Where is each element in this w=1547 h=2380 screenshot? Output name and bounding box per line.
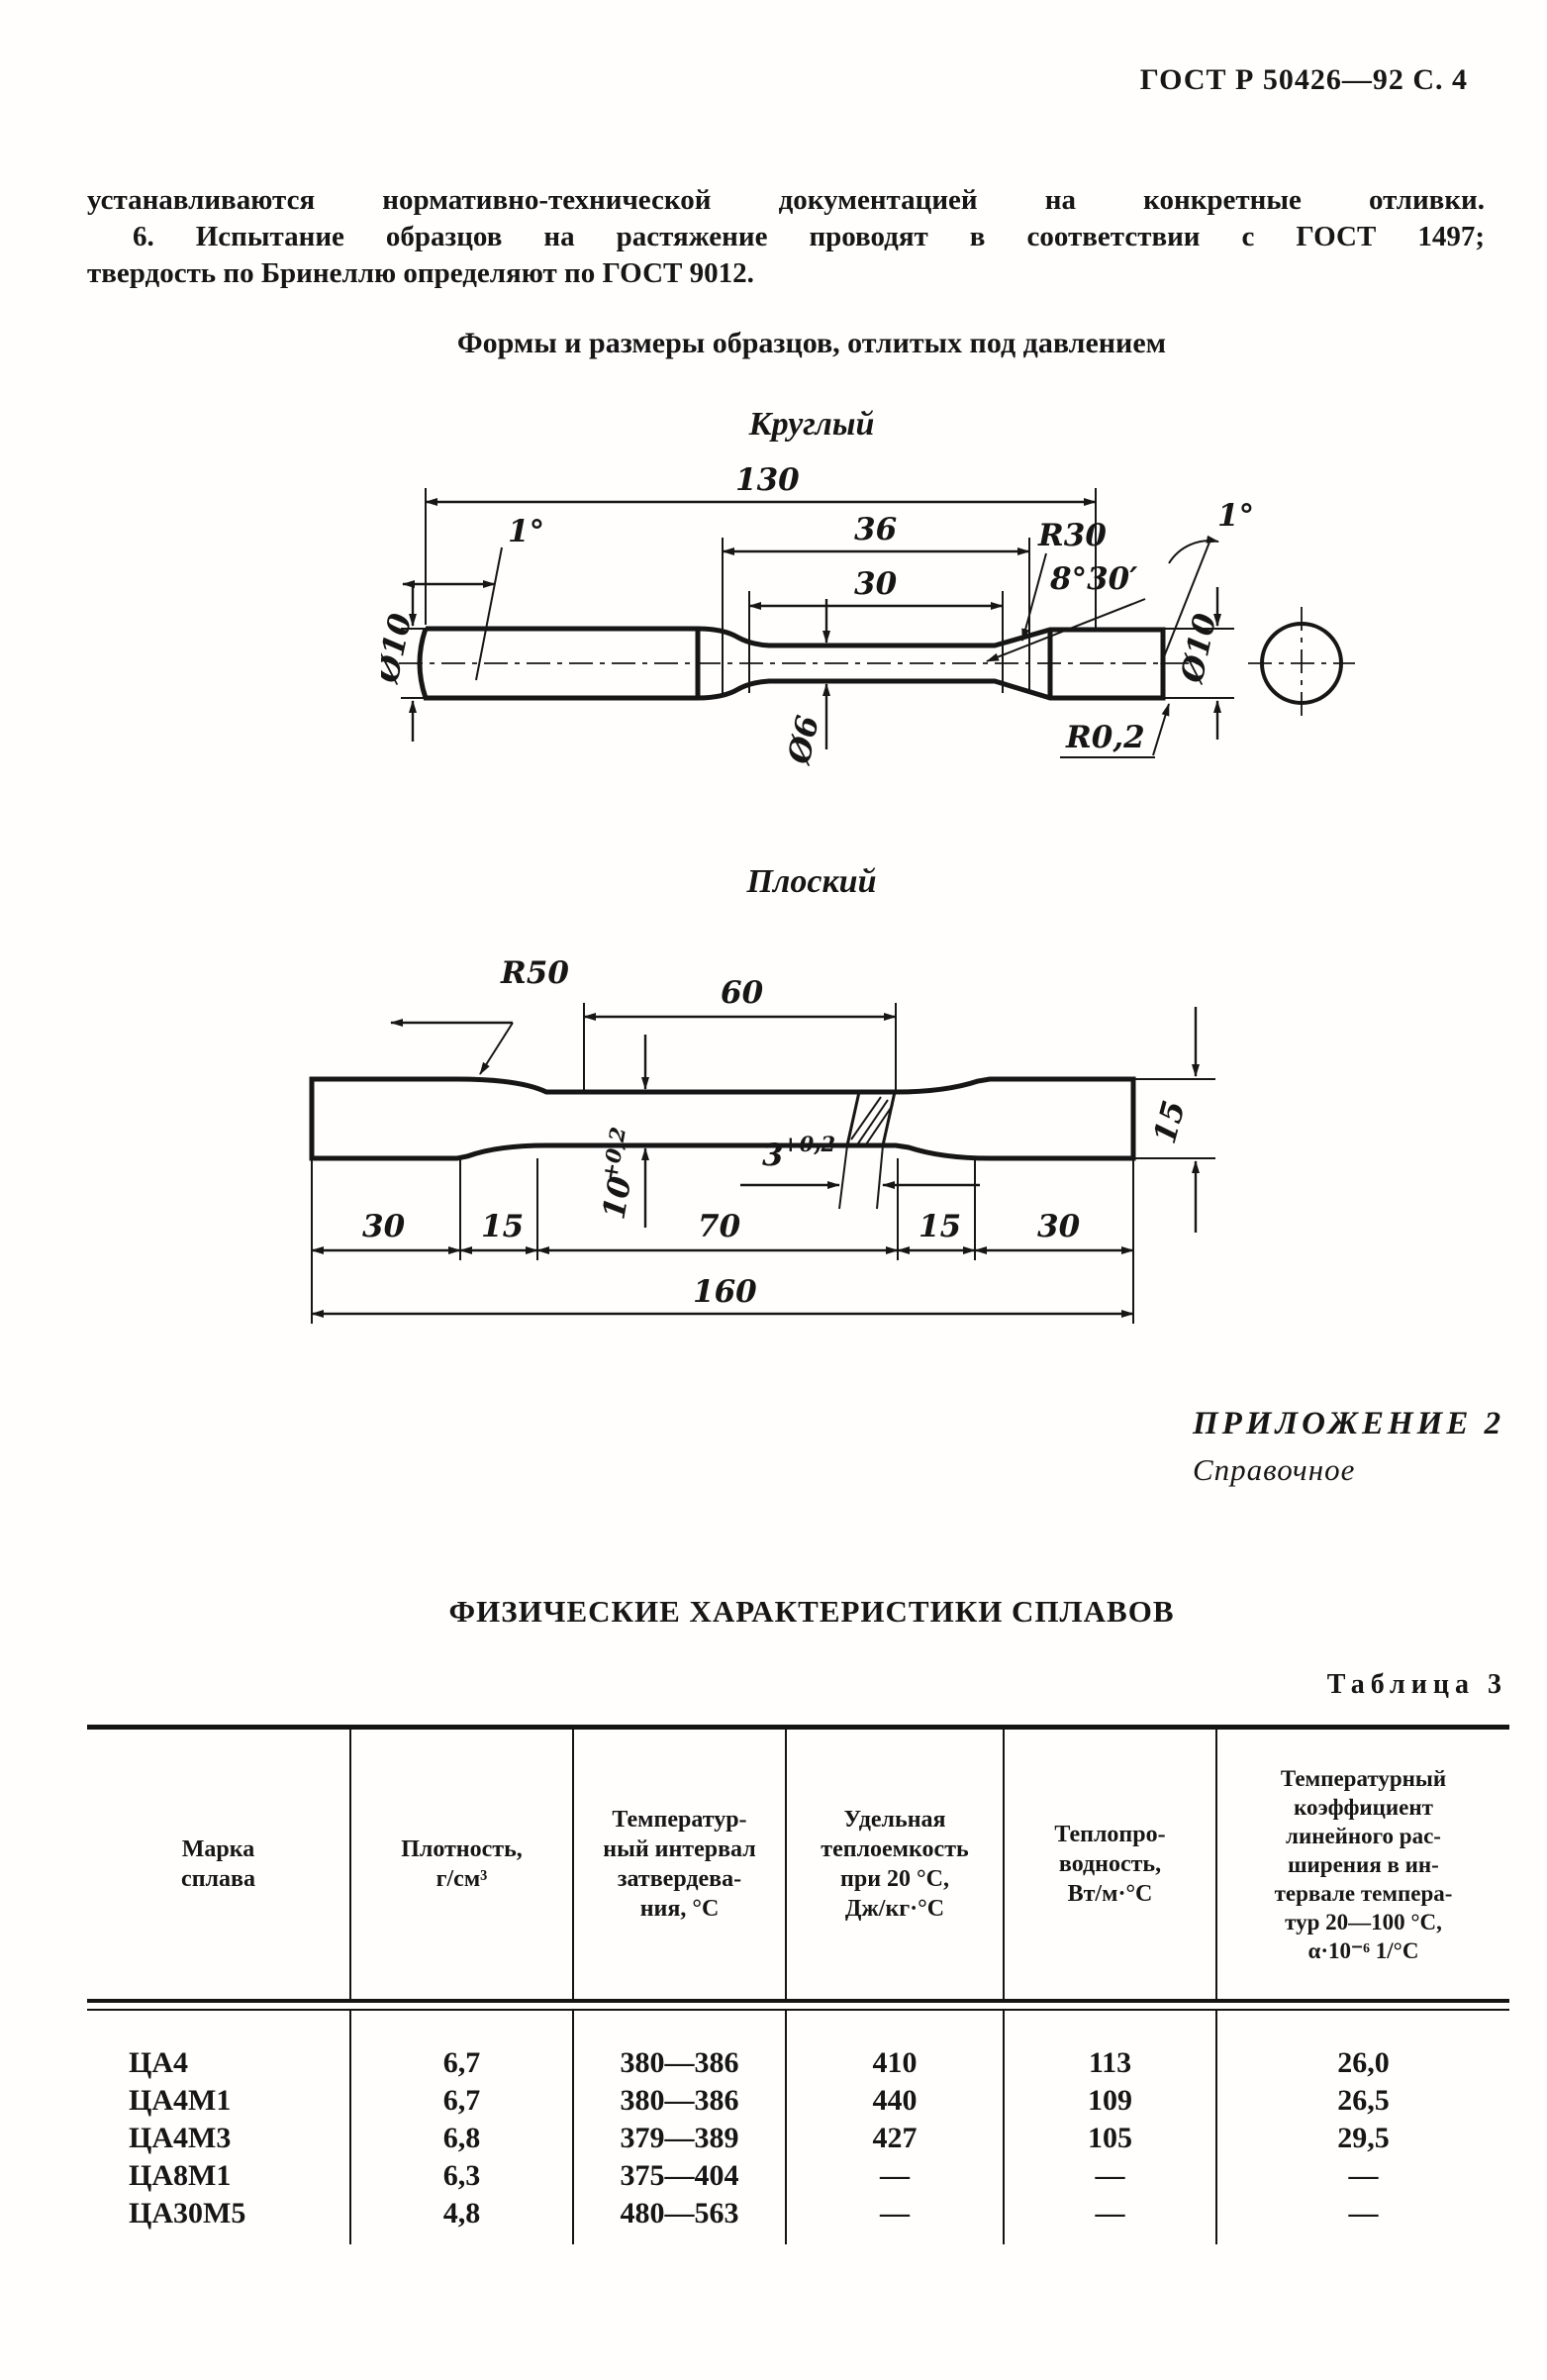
- table-cell: 4,8: [351, 2195, 572, 2232]
- table-cell: ЦА30М5: [87, 2195, 349, 2232]
- table-label: Таблица 3: [1327, 1669, 1507, 1701]
- dim-width15: 15: [1147, 1097, 1193, 1147]
- table-cell: ЦА4М1: [87, 2082, 349, 2120]
- dim-dia-mid-group: Ø6: [781, 713, 826, 769]
- table-cell: —: [1217, 2157, 1509, 2195]
- intro-paragraph: устанавливаются нормативно-технической д…: [87, 182, 1485, 292]
- table-cell: 440: [787, 2082, 1003, 2120]
- table-cell: —: [787, 2195, 1003, 2232]
- dim-dia-left: Ø10: [381, 610, 419, 687]
- dim-dia-right: Ø10: [1174, 610, 1223, 687]
- table-cell: —: [1005, 2195, 1215, 2232]
- dim-r02: R0,2: [1065, 720, 1145, 755]
- forms-title: Формы и размеры образцов, отлитых под да…: [139, 327, 1485, 360]
- col-header-density: Плотность, г/см³: [351, 1730, 574, 1999]
- table-body: ЦА4 ЦА4М1 ЦА4М3 ЦА8М1 ЦА30М5 6,7 6,7 6,8…: [87, 2011, 1509, 2244]
- column-interval: 380—386 380—386 379—389 375—404 480—563: [574, 2011, 787, 2244]
- table-cell: 427: [787, 2120, 1003, 2157]
- dim-thickness-tol: +0,2: [782, 1132, 835, 1156]
- table-cell: 109: [1005, 2082, 1215, 2120]
- table-cell: 380—386: [574, 2044, 785, 2082]
- column-density: 6,7 6,7 6,8 6,3 4,8: [351, 2011, 574, 2244]
- appendix-title: ПРИЛОЖЕНИЕ 2: [1193, 1406, 1504, 1442]
- dim-total160: 160: [693, 1274, 757, 1310]
- r50-leader: [480, 1023, 513, 1074]
- dim-r50: R50: [500, 955, 569, 991]
- dim-width15-group: 15: [1147, 1097, 1193, 1147]
- table-cell: 6,3: [351, 2157, 572, 2195]
- intro-line-3: твердость по Бринеллю определяют по ГОСТ…: [87, 255, 1485, 292]
- leader-r30: [1022, 553, 1046, 641]
- document-page: ГОСТ Р 50426—92 С. 4 устанавливаются нор…: [0, 0, 1547, 2380]
- table-cell: 6,7: [351, 2082, 572, 2120]
- dim-gaugewidth-group: 10 +0,2: [591, 1125, 647, 1222]
- col-header-brand: Марка сплава: [87, 1730, 351, 1999]
- flat-specimen-outline: [312, 1079, 1133, 1158]
- table-cell: —: [1217, 2195, 1509, 2232]
- table-cell: 379—389: [574, 2120, 785, 2157]
- column-conductivity: 113 109 105 — —: [1005, 2011, 1217, 2244]
- angle-arc-right: [1169, 541, 1218, 563]
- table-cell: 410: [787, 2044, 1003, 2082]
- dim-taper: 8°30′: [1049, 561, 1137, 597]
- dim-seg1: 30: [362, 1209, 406, 1244]
- table-cell: ЦА8М1: [87, 2157, 349, 2195]
- table-cell: ЦА4: [87, 2044, 349, 2082]
- page-header: ГОСТ Р 50426—92 С. 4: [1140, 63, 1468, 97]
- dim-angle-right: 1°: [1217, 498, 1254, 534]
- table-cell: 105: [1005, 2120, 1215, 2157]
- table-cell: 26,5: [1217, 2082, 1509, 2120]
- intro-line-1: устанавливаются нормативно-технической д…: [87, 182, 1485, 219]
- physical-characteristics-title: ФИЗИЧЕСКИЕ ХАРАКТЕРИСТИКИ СПЛАВОВ: [139, 1594, 1485, 1630]
- table-cell: 6,8: [351, 2120, 572, 2157]
- table-cell: 375—404: [574, 2157, 785, 2195]
- table-cell: 113: [1005, 2044, 1215, 2082]
- dim-dia-right-group: Ø10: [1174, 610, 1223, 687]
- appendix-subtitle: Справочное: [1193, 1452, 1504, 1488]
- flat-specimen-drawing: R50 60 15 10 +0,2 3 +0,2: [297, 916, 1257, 1332]
- taper-line-left: [476, 547, 502, 680]
- dim-r30: R30: [1037, 518, 1107, 553]
- ext-line: [839, 1145, 847, 1209]
- round-specimen-caption: Круглый: [139, 406, 1485, 444]
- table-cell: 380—386: [574, 2082, 785, 2120]
- table-header-row: Марка сплава Плотность, г/см³ Температур…: [87, 1730, 1509, 1999]
- round-specimen-drawing: 130 36 30 R30 1° 1° 8°30′ Ø10: [381, 450, 1371, 787]
- table-cell: —: [787, 2157, 1003, 2195]
- table-cell: 6,7: [351, 2044, 572, 2082]
- col-header-conductivity: Теплопро- водность, Вт/м·°С: [1005, 1730, 1217, 1999]
- table-cell: —: [1005, 2157, 1215, 2195]
- dim-dia-left-group: Ø10: [381, 610, 419, 687]
- dim-angle-left: 1°: [508, 514, 544, 549]
- dim-30: 30: [854, 566, 898, 602]
- dim-60: 60: [721, 975, 764, 1011]
- dim-gaugewidth-tol: +0,2: [597, 1125, 630, 1182]
- table-header-rule-thick: [87, 1999, 1509, 2003]
- dim-36: 36: [854, 512, 897, 547]
- column-expansion: 26,0 26,5 29,5 — —: [1217, 2011, 1509, 2244]
- intro-line-2: 6. Испытание образцов на растяжение пров…: [87, 219, 1485, 255]
- ext-line: [877, 1145, 883, 1209]
- table-cell: 480—563: [574, 2195, 785, 2232]
- dim-dia-mid: Ø6: [781, 713, 826, 769]
- dim-thickness-base: 3: [762, 1138, 784, 1173]
- appendix-block: ПРИЛОЖЕНИЕ 2 Справочное: [1193, 1406, 1504, 1488]
- dim-seg5: 30: [1037, 1209, 1081, 1244]
- table-cell: 26,0: [1217, 2044, 1509, 2082]
- dim-seg2: 15: [481, 1209, 524, 1244]
- col-header-expansion: Температурный коэффициент линейного рас-…: [1217, 1730, 1509, 1999]
- dim-130: 130: [735, 462, 800, 498]
- table-cell: 29,5: [1217, 2120, 1509, 2157]
- dim-seg3: 70: [698, 1209, 741, 1244]
- flat-specimen-caption: Плоский: [139, 863, 1485, 901]
- column-brand: ЦА4 ЦА4М1 ЦА4М3 ЦА8М1 ЦА30М5: [87, 2011, 351, 2244]
- column-heat: 410 440 427 — —: [787, 2011, 1005, 2244]
- alloys-table: Марка сплава Плотность, г/см³ Температур…: [87, 1725, 1509, 2244]
- dim-seg4: 15: [919, 1209, 961, 1244]
- col-header-heat: Удельная теплоемкость при 20 °С, Дж/кг·°…: [787, 1730, 1005, 1999]
- col-header-interval: Температур- ный интервал затвердева- ния…: [574, 1730, 787, 1999]
- table-cell: ЦА4М3: [87, 2120, 349, 2157]
- leader-r02: [1153, 704, 1169, 755]
